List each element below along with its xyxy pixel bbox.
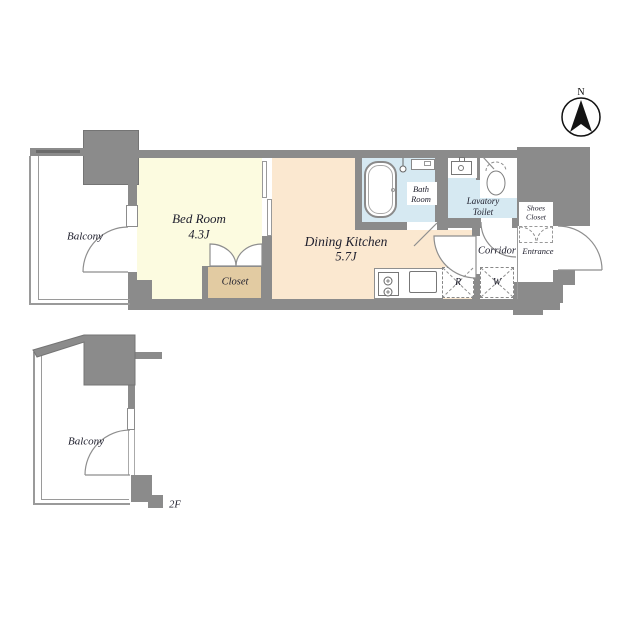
closet-label: Closet	[222, 277, 249, 290]
lavatory-label-line1: Lavatory	[467, 196, 500, 207]
dining-kitchen-area-label: 5.7J	[335, 250, 356, 265]
closet-door-right	[236, 244, 262, 266]
closet-door-left	[210, 244, 236, 266]
compass-north-label: N	[577, 87, 584, 99]
dk-corridor-door	[434, 236, 476, 278]
bedroom-area-label: 4.3J	[188, 228, 209, 243]
bath-room-label-line2: Room	[411, 194, 431, 204]
wall-2f-overhang	[33, 335, 135, 385]
shoes-closet-label-line2: Closet	[526, 213, 546, 222]
corridor-label: Corridor	[478, 246, 516, 259]
shoes-closet-bifold-arcs	[520, 227, 553, 242]
shoes-closet-label: Shoes Closet	[526, 204, 546, 223]
plan-linework	[0, 0, 640, 640]
lavatory-toilet-label: Lavatory Toilet	[467, 196, 500, 218]
bath-room-label-line1: Bath	[411, 184, 431, 194]
lavatory-label-line2: Toilet	[467, 207, 500, 218]
stove-burner-marks	[386, 279, 390, 294]
floor2-label: 2F	[169, 500, 181, 513]
dining-kitchen-label: Dining Kitchen	[305, 234, 388, 250]
entrance-door-arc	[558, 226, 602, 270]
shoes-closet-label-line1: Shoes	[526, 204, 546, 213]
washer-label: W	[493, 277, 501, 289]
lavatory-sink-drain	[459, 166, 464, 171]
balcony2-label: Balcony	[68, 435, 104, 448]
shower-head	[400, 166, 406, 172]
bath-room-label: Bath Room	[411, 184, 431, 204]
balcony-label: Balcony	[67, 230, 103, 243]
floor-plan-canvas: Balcony Bed Room 4.3J Closet Dining Kitc…	[0, 0, 640, 640]
toilet-bowl	[487, 171, 505, 195]
bath-door-leaf	[414, 223, 437, 246]
bedroom-label: Bed Room	[172, 211, 226, 227]
fixture-details	[384, 158, 505, 296]
compass-icon	[562, 98, 600, 136]
door-swings	[83, 157, 602, 475]
entrance-label: Entrance	[522, 246, 553, 256]
bathtub-drain	[392, 189, 395, 192]
refrigerator-label: R	[455, 277, 461, 289]
